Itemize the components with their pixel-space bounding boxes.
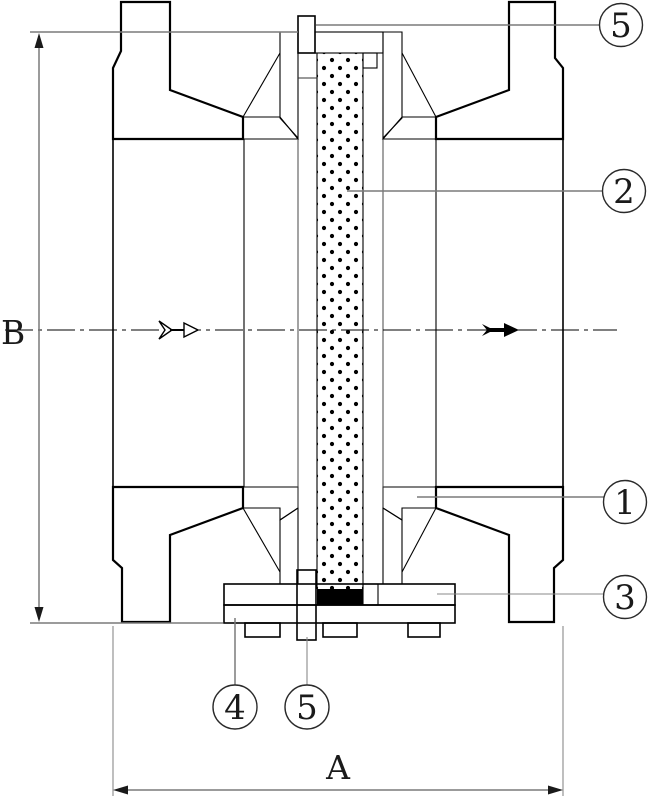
seat-band-bottom-right	[383, 487, 436, 520]
svg-text:1: 1	[614, 483, 636, 523]
body-flange-top-right	[436, 2, 563, 139]
callout-body: 1	[604, 481, 647, 524]
svg-text:5: 5	[610, 6, 632, 46]
svg-text:4: 4	[224, 688, 246, 728]
flare-line-top-left	[243, 53, 280, 117]
technical-drawing-canvas: B A 5 2 1 3 4 5	[0, 0, 648, 800]
callout-cover: 3	[604, 576, 647, 619]
filter-element	[317, 53, 363, 589]
callout-top-screw: 5	[600, 4, 643, 47]
seat-band-top-right	[383, 117, 436, 139]
guide-wall-bottom-right	[383, 508, 402, 584]
seat-seal	[317, 589, 363, 605]
flare-line-bottom-right	[402, 508, 436, 572]
bolt-tab-middle	[323, 623, 357, 637]
seat-band-top-left	[243, 117, 298, 139]
dim-arrow-b-bottom	[35, 607, 44, 622]
svg-text:2: 2	[613, 172, 635, 212]
svg-text:3: 3	[614, 578, 636, 618]
flow-arrow-inlet-icon	[159, 321, 198, 339]
body-flange-top-left	[113, 2, 243, 139]
dim-arrow-b-top	[35, 33, 44, 48]
callout-plate: 4	[213, 685, 257, 729]
dim-label-b: B	[1, 313, 25, 352]
bolt-tab-left	[245, 623, 280, 637]
dim-arrow-a-right	[548, 786, 563, 795]
cap-notch-right	[363, 53, 377, 68]
retainer-screw-top	[298, 16, 315, 53]
bolt-tab-right	[408, 623, 440, 637]
guide-wall-bottom-left	[280, 508, 298, 584]
flare-line-bottom-left	[243, 508, 280, 572]
callout-element: 2	[603, 170, 646, 213]
seat-band-bottom-left	[243, 487, 298, 520]
flare-line-top-right	[402, 53, 436, 117]
bottom-plate-lower	[224, 605, 455, 623]
guide-wall-top-left	[280, 32, 298, 138]
valve-section-drawing: B A 5 2 1 3 4 5	[0, 0, 648, 800]
dim-label-a: A	[325, 748, 351, 787]
svg-text:5: 5	[296, 688, 318, 728]
guide-wall-top-right	[383, 32, 402, 138]
callout-bottom-screw: 5	[285, 685, 329, 729]
dim-arrow-a-left	[113, 786, 128, 795]
cover-gap-right	[363, 584, 378, 605]
flow-arrow-outlet-icon	[482, 323, 519, 337]
top-cap-plate	[315, 32, 383, 53]
